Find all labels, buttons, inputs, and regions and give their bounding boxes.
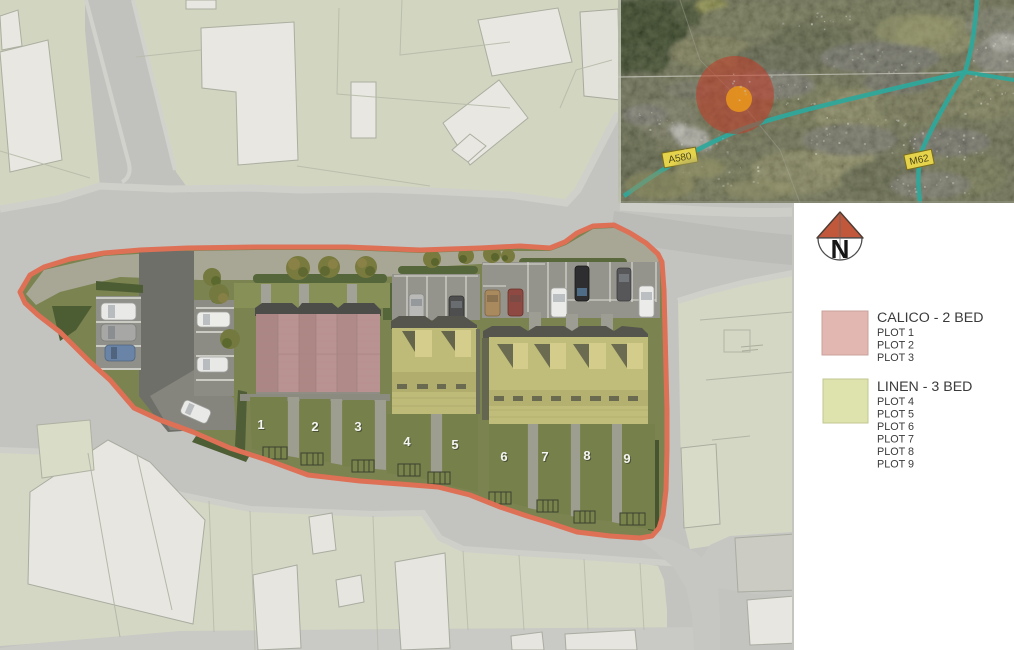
svg-text:4: 4 (403, 434, 411, 449)
svg-text:CALICO - 2 BED: CALICO - 2 BED (877, 310, 983, 326)
svg-text:3: 3 (354, 419, 361, 434)
svg-text:PLOT 8: PLOT 8 (877, 446, 914, 458)
svg-text:6: 6 (500, 449, 507, 464)
svg-text:PLOT 5: PLOT 5 (877, 409, 914, 421)
svg-text:2: 2 (311, 419, 318, 434)
svg-text:PLOT 6: PLOT 6 (877, 421, 914, 433)
svg-text:PLOT 1: PLOT 1 (877, 327, 914, 339)
svg-text:PLOT 2: PLOT 2 (877, 340, 914, 352)
svg-text:5: 5 (451, 437, 458, 452)
svg-text:PLOT 7: PLOT 7 (877, 434, 914, 446)
svg-text:8: 8 (583, 448, 590, 463)
svg-text:N: N (831, 234, 850, 264)
svg-text:PLOT 4: PLOT 4 (877, 396, 914, 408)
svg-text:7: 7 (541, 449, 548, 464)
svg-text:9: 9 (623, 451, 630, 466)
svg-text:1: 1 (257, 417, 264, 432)
svg-text:LINEN - 3 BED: LINEN - 3 BED (877, 379, 972, 395)
svg-text:PLOT 3: PLOT 3 (877, 352, 914, 364)
svg-text:PLOT 9: PLOT 9 (877, 459, 914, 471)
